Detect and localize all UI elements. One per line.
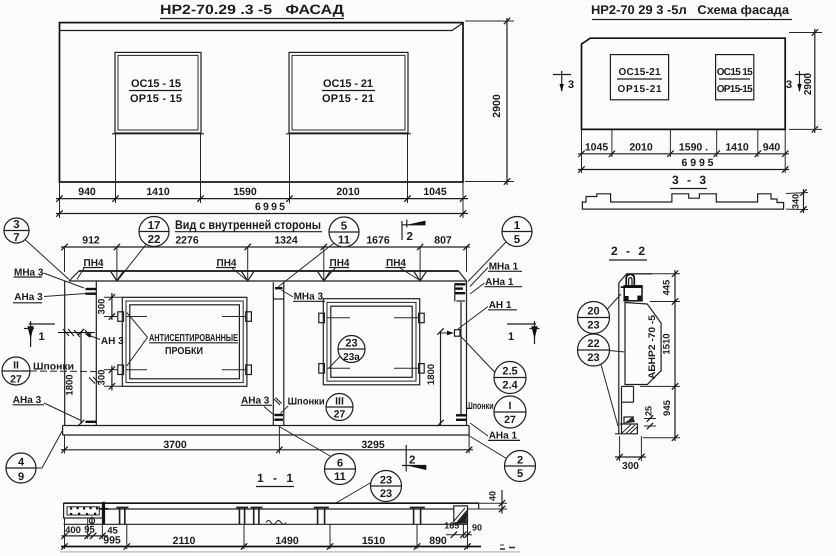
svg-text:912: 912 (82, 235, 100, 247)
svg-text:22: 22 (148, 234, 161, 246)
svg-text:22: 22 (587, 338, 599, 350)
svg-text:17: 17 (148, 220, 161, 232)
svg-text:5: 5 (514, 234, 521, 246)
svg-text:2 - 2: 2 - 2 (611, 244, 645, 258)
svg-text:23: 23 (380, 475, 392, 487)
svg-text:II: II (13, 360, 19, 372)
svg-text:23: 23 (380, 488, 392, 500)
svg-text:300: 300 (97, 370, 108, 386)
svg-text:300: 300 (97, 299, 108, 315)
svg-text:1676: 1676 (366, 235, 390, 247)
svg-text:ПРОБКИ: ПРОБКИ (165, 346, 203, 357)
svg-text:1590 .: 1590 . (679, 142, 708, 154)
svg-text:300: 300 (622, 461, 639, 472)
svg-text:ОС15 - 15: ОС15 - 15 (131, 78, 181, 90)
svg-text:1045: 1045 (423, 186, 447, 198)
svg-text:940: 940 (78, 186, 96, 198)
svg-text:АБНР2 -70 -5: АБНР2 -70 -5 (647, 314, 658, 379)
svg-text:1410: 1410 (146, 186, 170, 198)
svg-text:1800: 1800 (426, 364, 437, 385)
svg-text:23: 23 (587, 320, 599, 332)
svg-text:5: 5 (517, 468, 523, 480)
svg-text:2.5: 2.5 (502, 366, 517, 378)
svg-text:2010: 2010 (336, 186, 360, 198)
svg-text:2: 2 (517, 455, 523, 467)
svg-text:23: 23 (587, 352, 599, 364)
svg-text:3: 3 (13, 219, 19, 231)
svg-text:1: 1 (39, 331, 45, 343)
svg-text:ОС15-21: ОС15-21 (619, 67, 661, 78)
svg-text:2: 2 (409, 455, 415, 467)
svg-text:3: 3 (568, 79, 574, 91)
svg-text:ОС15 - 21: ОС15 - 21 (323, 78, 373, 90)
svg-text:АНа 3: АНа 3 (14, 292, 43, 303)
svg-text:940: 940 (763, 142, 781, 154)
svg-text:1510: 1510 (362, 535, 386, 547)
svg-text:40: 40 (488, 491, 498, 501)
svg-text:2: 2 (407, 231, 413, 243)
svg-text:7: 7 (13, 232, 19, 244)
svg-text:90: 90 (472, 523, 482, 533)
svg-text:945: 945 (662, 399, 673, 416)
svg-text:890: 890 (429, 535, 447, 547)
svg-text:3295: 3295 (361, 439, 385, 451)
svg-text:400: 400 (65, 525, 81, 536)
svg-text:95: 95 (84, 525, 95, 536)
svg-text:5: 5 (341, 221, 348, 233)
svg-text:3700: 3700 (163, 439, 187, 451)
svg-text:1410: 1410 (725, 142, 749, 154)
svg-text:1: 1 (508, 331, 514, 343)
svg-text:6: 6 (337, 458, 343, 470)
svg-text:2900: 2900 (491, 94, 503, 118)
svg-text:3: 3 (786, 79, 792, 91)
svg-text:ОС15 15: ОС15 15 (717, 67, 753, 78)
svg-text:2.4: 2.4 (502, 380, 518, 392)
svg-text:ОР15 - 15: ОР15 - 15 (130, 93, 182, 105)
svg-text:165: 165 (444, 521, 459, 531)
svg-text:2276: 2276 (175, 235, 199, 247)
svg-text:ОР15-15: ОР15-15 (717, 84, 753, 95)
svg-text:НР2-70.29 .3 -5 ФАСАД: НР2-70.29 .3 -5 ФАСАД (160, 2, 344, 17)
svg-text:3 - 3: 3 - 3 (672, 173, 706, 187)
svg-text:25: 25 (644, 406, 654, 416)
svg-text:2010: 2010 (629, 142, 653, 154)
svg-text:1800: 1800 (65, 374, 76, 395)
svg-text:1490: 1490 (275, 535, 299, 547)
svg-text:445: 445 (662, 279, 673, 296)
svg-text:1590: 1590 (233, 186, 257, 198)
svg-text:2900: 2900 (803, 72, 814, 95)
svg-text:1510: 1510 (662, 333, 673, 354)
svg-text:4: 4 (18, 457, 25, 469)
svg-text:23а: 23а (343, 352, 360, 363)
svg-text:27: 27 (10, 374, 22, 386)
svg-text:I: I (509, 400, 512, 412)
svg-text:9: 9 (18, 471, 24, 483)
svg-text:Шпонки: Шпонки (288, 397, 325, 408)
svg-text:11: 11 (334, 471, 346, 483)
svg-text:НР2-70 29 3 -5л Схема фасада: НР2-70 29 3 -5л Схема фасада (591, 3, 790, 17)
svg-text:23: 23 (345, 338, 357, 350)
svg-text:1045: 1045 (585, 142, 609, 154)
svg-text:11: 11 (338, 235, 351, 247)
svg-text:1 - 1: 1 - 1 (257, 471, 293, 485)
svg-text:ОР15-21: ОР15-21 (618, 84, 662, 95)
svg-text:Вид с внутренней стороны: Вид с внутренней стороны (175, 218, 321, 232)
svg-text:995: 995 (103, 535, 121, 547)
svg-text:1324: 1324 (274, 235, 298, 247)
svg-text:27: 27 (504, 414, 516, 426)
svg-text:20: 20 (587, 306, 599, 318)
svg-text:Шпонки: Шпонки (466, 401, 494, 412)
svg-text:ОР15 - 21: ОР15 - 21 (322, 93, 374, 105)
svg-text:340: 340 (791, 194, 801, 209)
svg-text:2110: 2110 (173, 535, 196, 547)
svg-text:1: 1 (514, 220, 521, 232)
svg-text:27: 27 (334, 409, 346, 421)
svg-text:АН 3: АН 3 (101, 336, 124, 347)
svg-text:III: III (335, 396, 344, 408)
svg-text:807: 807 (434, 235, 452, 247)
